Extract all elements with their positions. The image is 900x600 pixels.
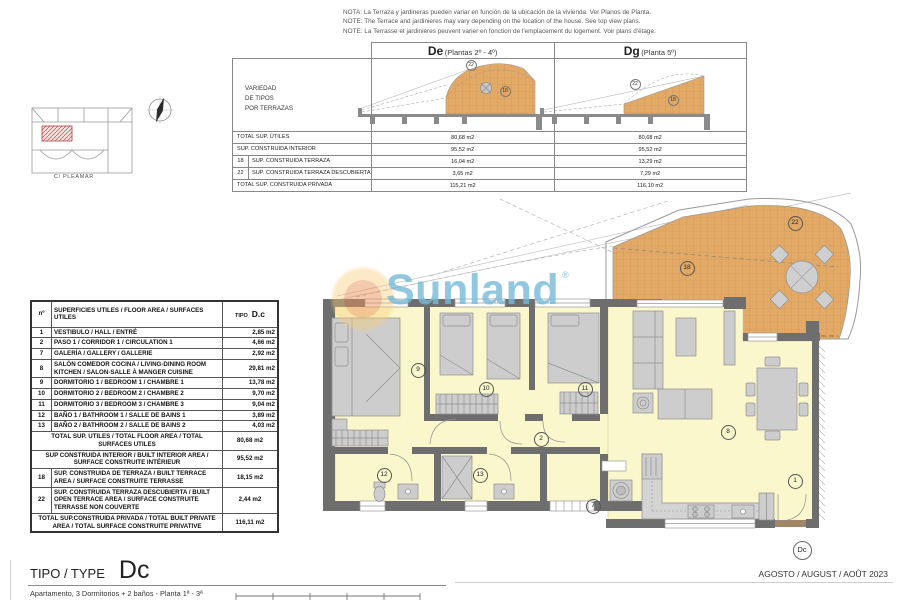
area-summary-row: 18SUP. CONSTRUIDA DE TERRAZA / BUILT TER… (31, 469, 278, 488)
variant-dg-value: 80,68 m2 (554, 132, 746, 144)
summary-area: 18,15 m2 (223, 469, 279, 488)
room-area: 4,66 m2 (223, 338, 279, 349)
room-label: SALÓN COMEDOR COCINA / LIVING-DINING ROO… (52, 359, 223, 378)
type-title: TIPO / TYPE Dc (30, 556, 149, 585)
summary-area: 116,11 m2 (223, 513, 279, 532)
room-label: BAÑO 1 / BATHROOM 1 / SALLE DE BAINS 1 (52, 410, 223, 421)
room-num: 7 (31, 349, 52, 360)
variant-header-row: De (Plantas 2º - 4º) Dg (Planta 5º) (233, 43, 747, 59)
room-num: 1 (31, 327, 52, 338)
variant-row-num: 22 (233, 168, 249, 179)
room-label: DORMITORIO 2 / BEDROOM 2 / CHAMBRE 2 (52, 389, 223, 400)
sheet-border (10, 560, 11, 600)
type-code-dg: Dg (624, 44, 640, 58)
variant-row-num: 18 (233, 156, 249, 167)
dining-table (757, 368, 797, 430)
floor-plan-sheet: NOTA: La Terraza y jardineras pueden var… (0, 0, 900, 600)
side-label-line: POR TERRAZAS (245, 104, 371, 114)
room-label: GALERÍA / GALLERY / GALLERIE (52, 349, 223, 360)
room-area: 9,04 m2 (223, 399, 279, 410)
footer-rule-right (455, 582, 893, 583)
variant-de-value: 80,68 m2 (371, 132, 554, 144)
summary-num: 22 (31, 487, 52, 513)
variant-dg-value: 95,52 m2 (554, 144, 746, 156)
summary-area: 80,68 m2 (223, 432, 279, 451)
fridge (642, 454, 662, 479)
dg-sketch-label-18: 18 (668, 95, 679, 106)
room-num: 8 (31, 359, 52, 378)
variant-de-value: 95,52 m2 (371, 144, 554, 156)
tipo-label: TIPO (235, 313, 248, 319)
dg-sketch-cell (554, 59, 746, 132)
disclaimer-notes: NOTA: La Terraza y jardineras pueden var… (343, 8, 898, 36)
de-sketch-cell (371, 59, 554, 132)
room-num: 12 (31, 410, 52, 421)
variant-sketch-row: VARIEDAD DE TIPOS POR TERRAZAS (233, 59, 747, 132)
area-summary-row: SUP CONSTRUIDA INTERIOR / BUILT INTERIOR… (31, 450, 278, 469)
column-header-de: De (Plantas 2º - 4º) (371, 43, 554, 59)
room-area: 29,81 m2 (223, 359, 279, 378)
variant-de-value: 16,04 m2 (371, 156, 554, 168)
side-label-line: VARIEDAD (245, 84, 371, 94)
room-area: 2,92 m2 (223, 349, 279, 360)
variant-row-label: SUP. CONSTRUIDA TERRAZA DESCUBIERTA (249, 168, 371, 179)
exterior-hatch (819, 346, 825, 520)
marker-bedroom-3: 11 (578, 382, 593, 397)
dg-sketch-label-22: 22 (630, 79, 641, 90)
room-label: DORMITORIO 3 / BEDROOM 3 / CHAMBRE 3 (52, 399, 223, 410)
type-title-label: TIPO / TYPE (30, 566, 105, 581)
marker-living-room: 8 (721, 425, 736, 440)
type-title-value: Dc (119, 556, 150, 585)
area-row: 10DORMITORIO 2 / BEDROOM 2 / CHAMBRE 29,… (31, 389, 278, 400)
room-label: BAÑO 2 / BATHROOM 2 / SALLE DE BAINS 2 (52, 421, 223, 432)
variant-row-label: TOTAL SUP. ÚTILES (233, 132, 289, 143)
marker-bedroom-2: 10 (479, 382, 494, 397)
area-row: 1VESTIBULO / HALL / ENTRÉ2,85 m2 (31, 327, 278, 338)
unit-location-highlight (42, 126, 72, 141)
note-line-fr: NOTE: La Terrasse et jardinières peuvent… (343, 27, 898, 36)
note-line-en: NOTE: The Terrace and jardinieres may va… (343, 17, 898, 26)
summary-label: SUP CONSTRUIDA INTERIOR / BUILT INTERIOR… (31, 450, 223, 469)
unit-entrance-badge: Dc (793, 541, 812, 560)
tv-cabinet (724, 311, 735, 365)
compass-icon (146, 96, 174, 124)
column-header-dg: Dg (Planta 5º) (554, 43, 746, 59)
site-location-key (32, 108, 132, 173)
summary-area: 2,44 m2 (223, 487, 279, 513)
type-floors-dg: (Planta 5º) (641, 48, 676, 57)
summary-num: 18 (31, 469, 52, 488)
area-row: 13BAÑO 2 / BATHROOM 2 / SALLE DE BAINS 2… (31, 421, 278, 432)
footer-rule-left (28, 585, 446, 586)
variant-row-label: SUP. CONSTRUIDA INTERIOR (233, 144, 316, 155)
summary-label: SUP. CONSTRUIDA TERRAZA DESCUBIERTA / BU… (52, 487, 223, 513)
marker-terrace: 18 (680, 261, 695, 276)
area-summary-row: TOTAL SUP. UTILES / TOTAL FLOOR AREA / T… (31, 432, 278, 451)
marker-galeria: 7 (586, 499, 601, 514)
marker-bedroom-1: 9 (411, 363, 426, 378)
area-summary-row: 22SUP. CONSTRUIDA TERRAZA DESCUBIERTA / … (31, 487, 278, 513)
type-floors-de: (Plantas 2º - 4º) (445, 48, 498, 57)
variant-row: 22SUP. CONSTRUIDA TERRAZA DESCUBIERTA 3,… (233, 168, 747, 180)
summary-area: 95,52 m2 (223, 450, 279, 469)
variant-de-value: 115,21 m2 (371, 180, 554, 192)
scale-bar (236, 593, 420, 600)
room-area: 9,70 m2 (223, 389, 279, 400)
variant-de-value: 3,65 m2 (371, 168, 554, 180)
room-num: 11 (31, 399, 52, 410)
room-label: DORMITORIO 1 / BEDROOM 1 / CHAMBRE 1 (52, 378, 223, 389)
room-num: 2 (31, 338, 52, 349)
nightstand (332, 419, 347, 431)
variant-dg-value: 7,29 m2 (554, 168, 746, 180)
variant-row: TOTAL SUP. CONSTRUIDA PRIVADA 115,21 m2 … (233, 180, 747, 192)
side-label-line: DE TIPOS (245, 94, 371, 104)
note-line-es: NOTA: La Terraza y jardineras pueden var… (343, 8, 898, 17)
area-row: 11DORMITORIO 3 / BEDROOM 3 / CHAMBRE 39,… (31, 399, 278, 410)
sofa-vertical (633, 311, 663, 389)
apartment-description: Apartamento, 3 Dormitorios + 2 baños - P… (30, 589, 203, 598)
de-sketch-label-22: 22 (466, 60, 477, 71)
room-num: 10 (31, 389, 52, 400)
room-area: 13,78 m2 (223, 378, 279, 389)
area-header-row: nº SUPERFICIES UTILES / FLOOR AREA / SUR… (31, 301, 278, 327)
room-area: 2,85 m2 (223, 327, 279, 338)
variant-row-label: TOTAL SUP. CONSTRUIDA PRIVADA (233, 180, 332, 191)
summary-label: TOTAL SUP. UTILES / TOTAL FLOOR AREA / T… (31, 432, 223, 451)
street-label: C/ PLEAMAR (54, 174, 94, 180)
marker-bathroom-2: 13 (473, 468, 488, 483)
marker-hall: 1 (788, 474, 803, 489)
type-code-de: De (428, 44, 443, 58)
area-row: 8SALÓN COMEDOR COCINA / LIVING-DINING RO… (31, 359, 278, 378)
area-header-tipo: TIPOD.c (223, 301, 279, 327)
area-row: 12BAÑO 1 / BATHROOM 1 / SALLE DE BAINS 1… (31, 410, 278, 421)
room-area: 4,03 m2 (223, 421, 279, 432)
plan-date: AGOSTO / AUGUST / AOÛT 2023 (759, 569, 888, 579)
de-sketch-label-18: 18 (500, 86, 511, 97)
variant-row: SUP. CONSTRUIDA INTERIOR 95,52 m2 95,52 … (233, 144, 747, 156)
hob (688, 505, 714, 518)
floor-area-table: nº SUPERFICIES UTILES / FLOOR AREA / SUR… (30, 300, 279, 533)
summary-label: SUP. CONSTRUIDA DE TERRAZA / BUILT TERRA… (52, 469, 223, 488)
area-row: 7GALERÍA / GALLERY / GALLERIE2,92 m2 (31, 349, 278, 360)
marker-open-terrace: 22 (788, 216, 803, 231)
variant-row: 18SUP. CONSTRUIDA TERRAZA 16,04 m2 13,29… (233, 156, 747, 168)
variant-dg-value: 116,10 m2 (554, 180, 746, 192)
area-header-num: nº (31, 301, 52, 327)
summary-label: TOTAL SUP.CONSTRUIDA PRIVADA / TOTAL BUI… (31, 513, 223, 532)
room-area: 3,89 m2 (223, 410, 279, 421)
room-label: PASO 1 / CORRIDOR 1 / CIRCULATION 1 (52, 338, 223, 349)
room-num: 9 (31, 378, 52, 389)
area-header-label: SUPERFICIES UTILES / FLOOR AREA / SURFAC… (52, 301, 223, 327)
room-label: VESTIBULO / HALL / ENTRÉ (52, 327, 223, 338)
variant-side-label: VARIEDAD DE TIPOS POR TERRAZAS (233, 59, 372, 132)
variant-row: TOTAL SUP. ÚTILES 80,68 m2 80,68 m2 (233, 132, 747, 144)
room-num: 13 (31, 421, 52, 432)
coffee-table (676, 318, 696, 356)
area-row: 2PASO 1 / CORRIDOR 1 / CIRCULATION 14,66… (31, 338, 278, 349)
area-summary-row: TOTAL SUP.CONSTRUIDA PRIVADA / TOTAL BUI… (31, 513, 278, 532)
marker-corridor: 2 (534, 432, 549, 447)
terrace-variant-table: De (Plantas 2º - 4º) Dg (Planta 5º) VARI… (232, 42, 747, 192)
variant-dg-value: 13,29 m2 (554, 156, 746, 168)
tipo-value: D.c (252, 309, 265, 319)
area-row: 9DORMITORIO 1 / BEDROOM 1 / CHAMBRE 113,… (31, 378, 278, 389)
marker-bathroom-1: 12 (377, 468, 392, 483)
variant-row-label: SUP. CONSTRUIDA TERRAZA (249, 156, 330, 167)
